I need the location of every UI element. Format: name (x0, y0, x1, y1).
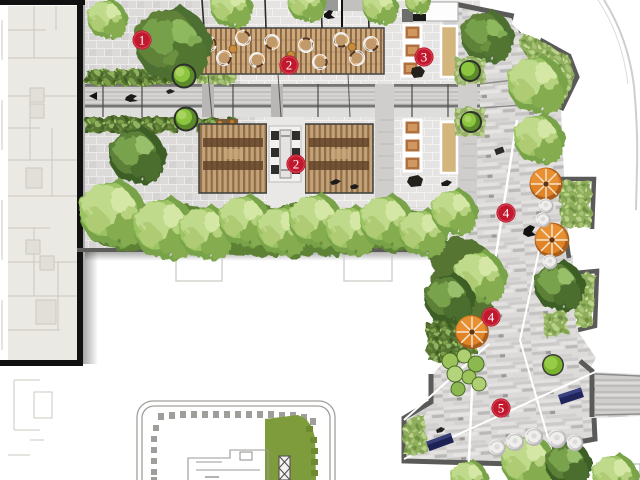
svg-text:4: 4 (488, 310, 495, 325)
svg-text:2: 2 (286, 58, 293, 73)
svg-text:4: 4 (503, 206, 510, 221)
svg-text:5: 5 (498, 401, 505, 416)
svg-text:2: 2 (293, 157, 300, 172)
svg-text:3: 3 (421, 50, 428, 65)
svg-text:1: 1 (139, 33, 146, 48)
